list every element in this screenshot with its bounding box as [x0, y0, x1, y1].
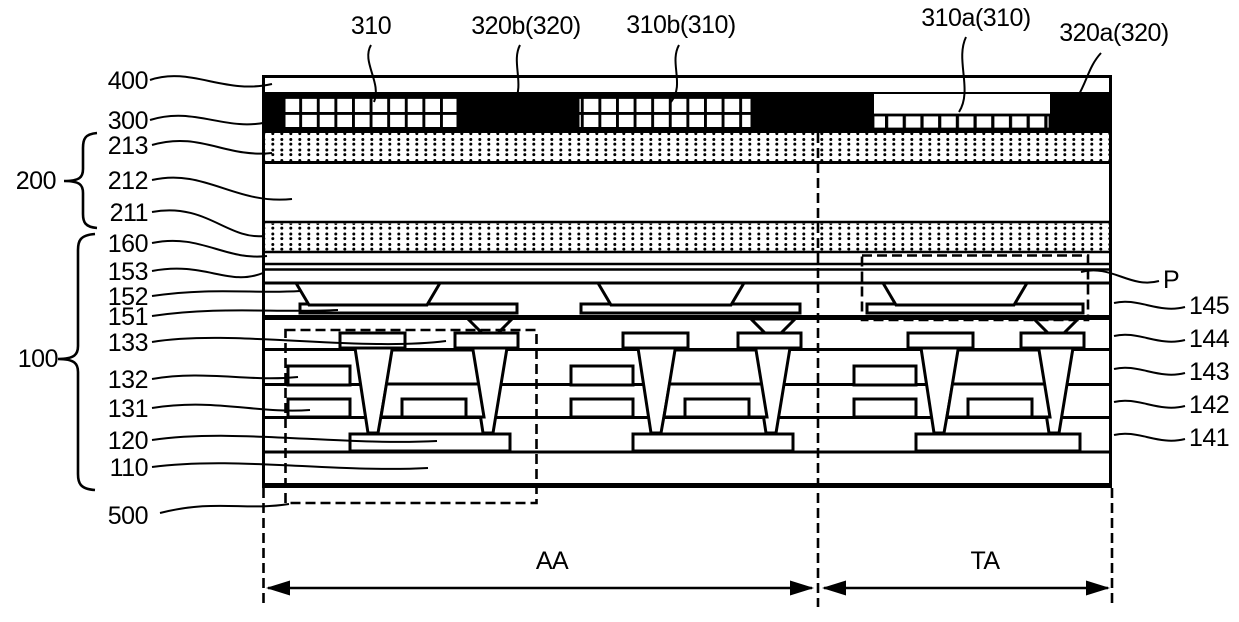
layer-label-120: 120 [88, 428, 148, 454]
layer-label-500: 500 [88, 503, 148, 529]
region-label-TA: TA [945, 548, 1025, 574]
line-132 [854, 366, 916, 385]
bottom-plate-120 [633, 434, 793, 451]
top-label-310: 310 [306, 13, 436, 39]
tft-units [288, 333, 1084, 451]
right-label-144: 144 [1189, 326, 1229, 352]
layer-label-153: 153 [88, 259, 148, 285]
right-label-142: 142 [1189, 392, 1229, 418]
layer-label-211: 211 [88, 200, 148, 226]
right-label-141: 141 [1189, 425, 1229, 451]
top-label-320a: 320a(320) [1049, 20, 1179, 46]
region-label-AA: AA [512, 548, 592, 574]
patent-figure: 400 300 213 212 211 160 153 152 151 133 … [0, 0, 1239, 622]
layer-label-110: 110 [88, 455, 148, 481]
electrode-133 [1021, 333, 1084, 348]
layer-label-212: 212 [88, 168, 148, 194]
electrode-133 [623, 333, 688, 348]
dimension-arrows [266, 581, 1110, 596]
top-label-320b: 320b(320) [461, 13, 591, 39]
electrode-133 [908, 333, 973, 348]
layer-213-dotted [262, 133, 1112, 161]
layer-label-213: 213 [88, 133, 148, 159]
group-label-200: 200 [8, 168, 56, 194]
layer-label-133: 133 [88, 330, 148, 356]
right-label-145: 145 [1189, 293, 1229, 319]
emission-152 [598, 283, 744, 305]
top-label-310b: 310b(310) [616, 12, 746, 38]
line-131 [571, 399, 633, 417]
layer-stack-lines [262, 75, 1112, 487]
layer-label-160: 160 [88, 231, 148, 257]
top-label-310a: 310a(310) [911, 5, 1041, 31]
gate-131 [968, 399, 1032, 417]
line-132 [571, 366, 633, 385]
layer-label-300: 300 [88, 108, 148, 134]
line-132 [288, 366, 350, 385]
layer-300-color-filter [262, 94, 1112, 131]
layer-label-131: 131 [88, 396, 148, 422]
right-label-P: P [1163, 267, 1179, 293]
line-131 [288, 399, 350, 417]
gate-131 [685, 399, 749, 417]
group-label-100: 100 [10, 346, 58, 372]
emission-152 [296, 283, 440, 305]
layer-label-151: 151 [88, 304, 148, 330]
emission-152 [883, 283, 1027, 305]
line-131 [854, 399, 916, 417]
layer-211-dotted [262, 224, 1112, 251]
right-label-143: 143 [1189, 359, 1229, 385]
layer-label-132: 132 [88, 367, 148, 393]
gate-131 [402, 399, 466, 417]
oled-elements [296, 283, 1083, 313]
electrode-133 [738, 333, 801, 348]
figure-drawing [0, 0, 1239, 622]
layer-label-400: 400 [88, 68, 148, 94]
layer-400-window [264, 77, 1111, 94]
electrode-133 [340, 333, 405, 348]
bottom-plate-120 [916, 434, 1080, 451]
electrode-133 [455, 333, 518, 348]
